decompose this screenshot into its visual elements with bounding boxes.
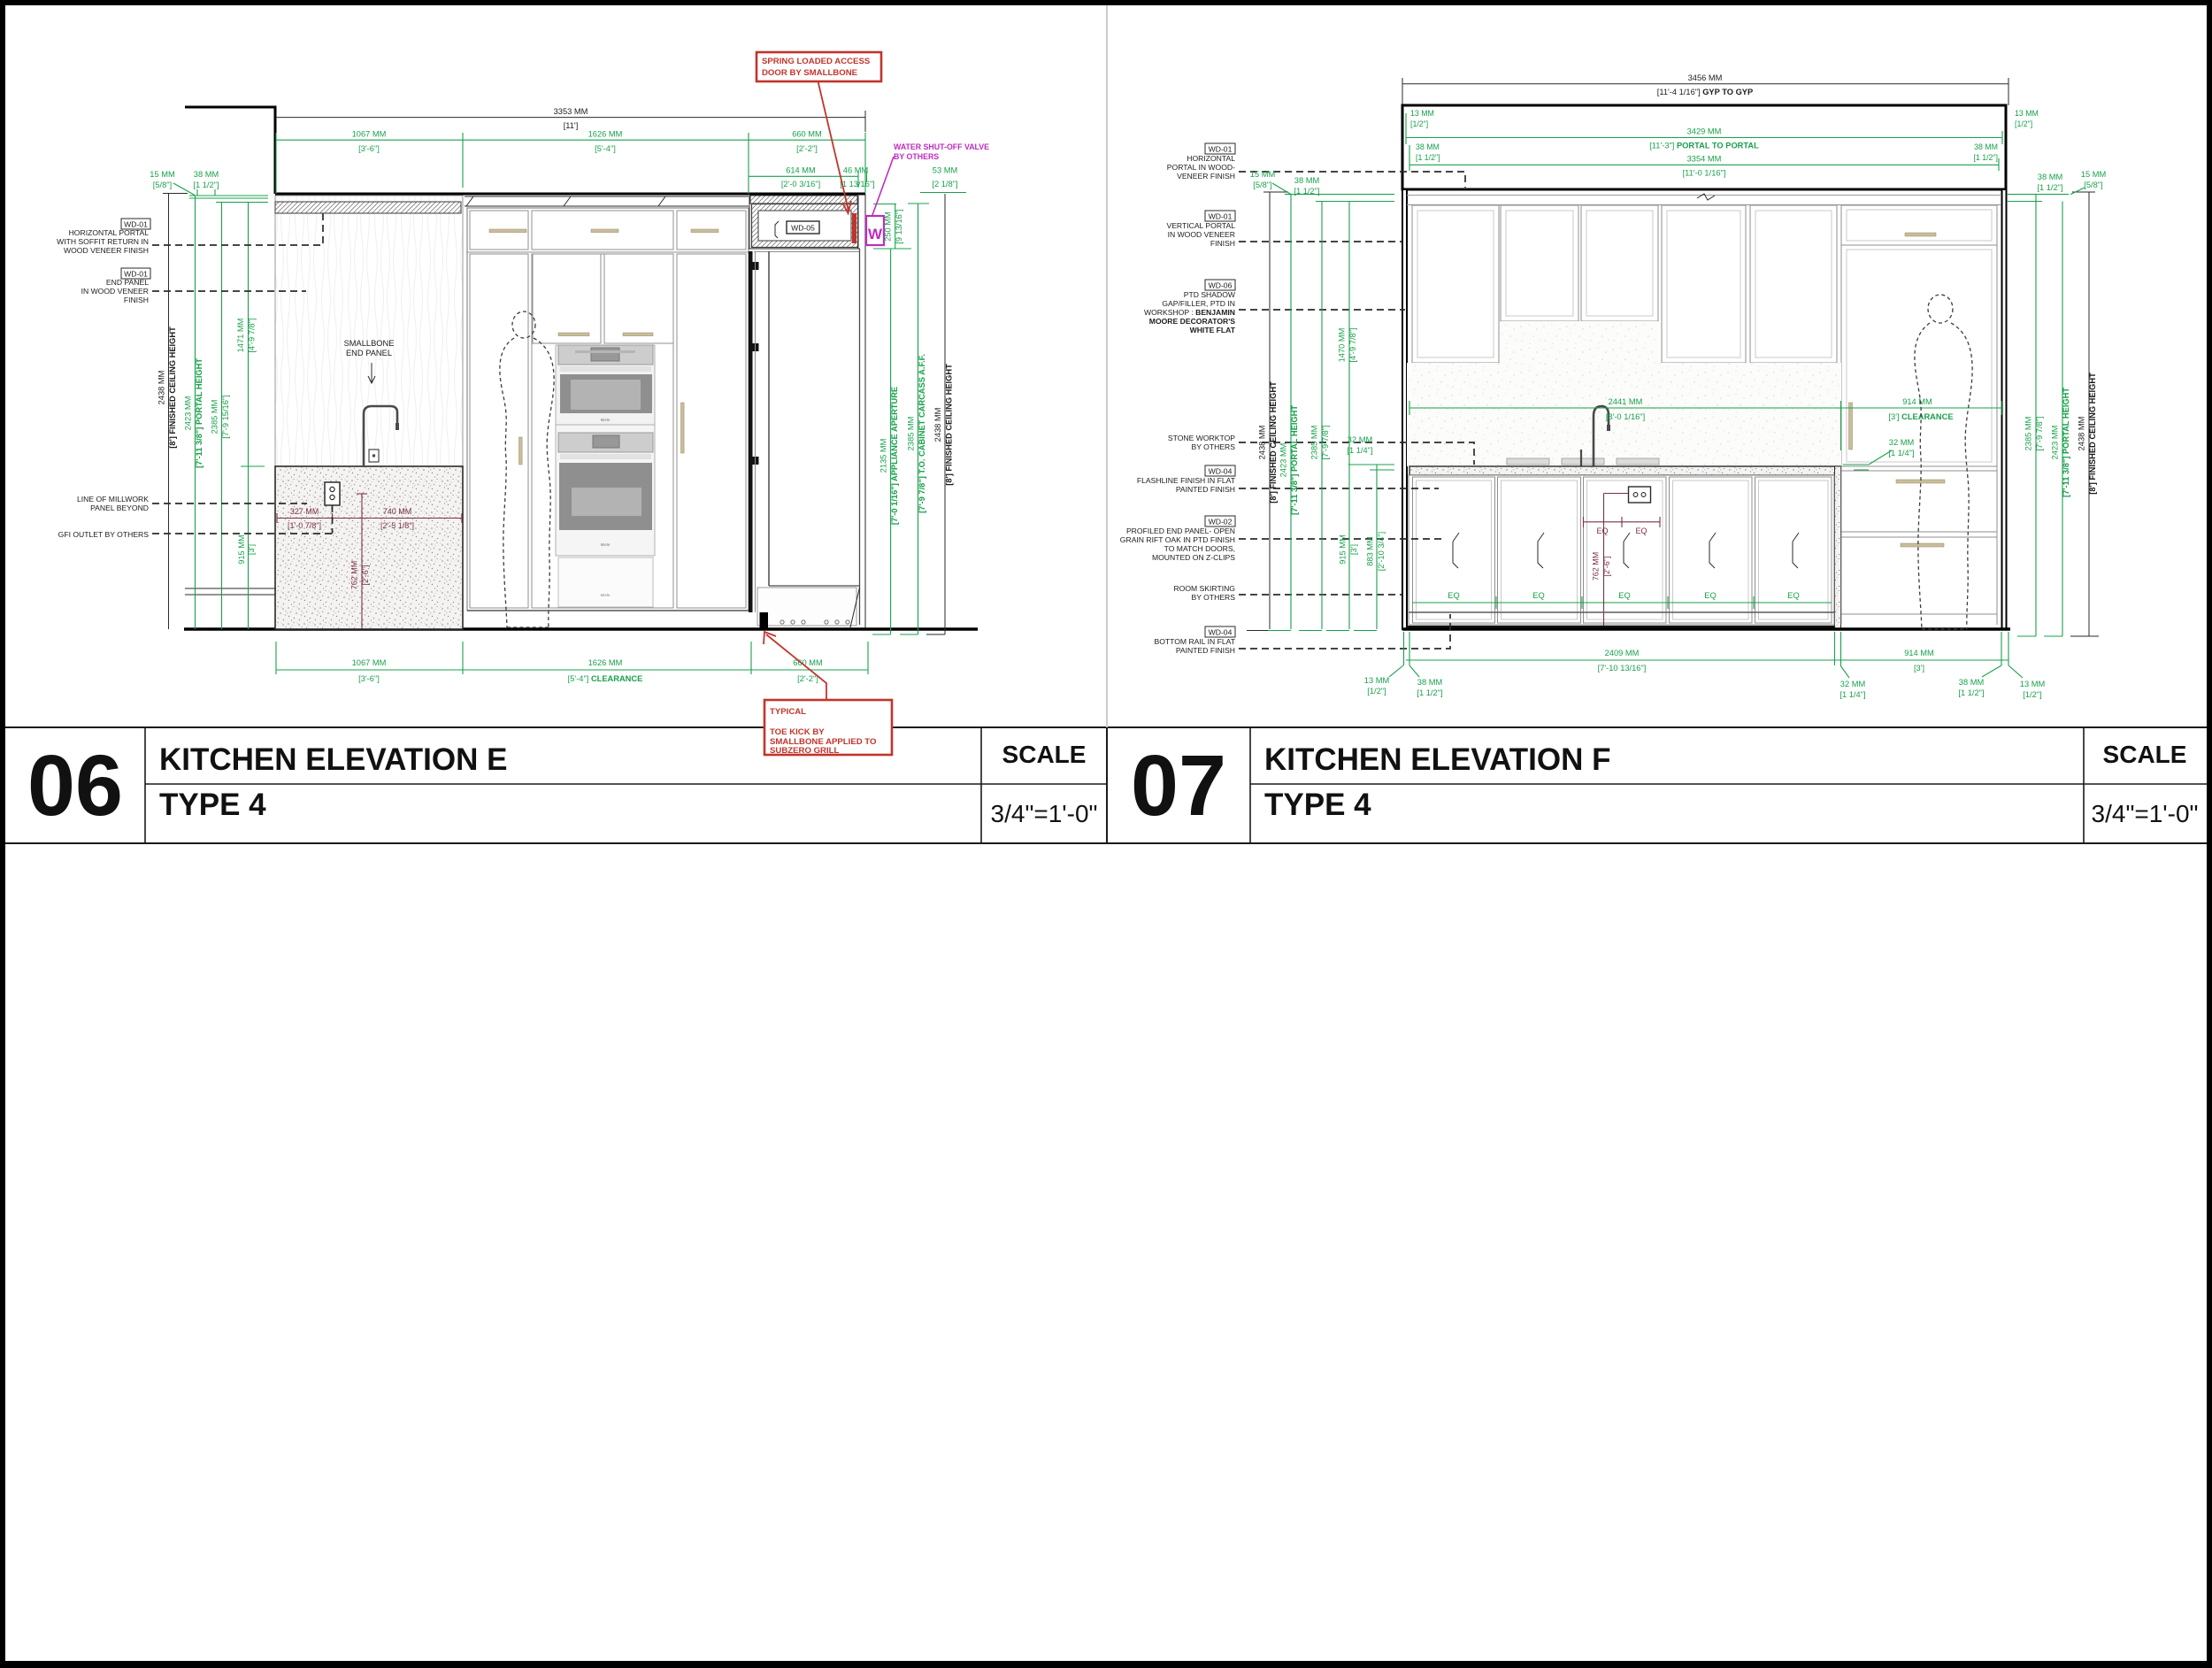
svg-text:EQ: EQ [1787,591,1799,600]
svg-text:LINE OF MILLWORK: LINE OF MILLWORK [77,495,149,503]
svg-text:2385 MM: 2385 MM [2024,417,2033,451]
svg-text:PAINTED FINISH: PAINTED FINISH [1176,485,1235,494]
svg-text:FLASHLINE FINISH IN FLAT: FLASHLINE FINISH IN FLAT [1137,476,1236,485]
svg-text:[11']: [11'] [564,121,579,130]
svg-text:[1 1/2"]: [1 1/2"] [1958,688,1984,697]
svg-text:EQ: EQ [1635,527,1647,535]
svg-text:Miele: Miele [601,542,611,547]
svg-text:15 MM: 15 MM [150,170,174,179]
svg-text:[7'-9 7/8"]: [7'-9 7/8"] [2035,416,2044,450]
svg-text:[7'-10 13/16"]: [7'-10 13/16"] [1598,664,1647,673]
svg-text:[7'-9 7/8"]: [7'-9 7/8"] [1321,425,1330,459]
svg-text:914 MM: 914 MM [1904,649,1934,657]
svg-text:[1/2"]: [1/2"] [2015,119,2032,128]
svg-text:PROFILED END PANEL- OPEN: PROFILED END PANEL- OPEN [1126,527,1235,535]
svg-text:[4'-9 7/8"]: [4'-9 7/8"] [248,318,257,352]
svg-text:[5/8"]: [5/8"] [2084,181,2102,189]
svg-text:1626 MM: 1626 MM [588,658,623,667]
svg-text:06: 06 [27,737,123,834]
svg-text:MOUNTED ON Z-CLIPS: MOUNTED ON Z-CLIPS [1152,553,1235,562]
svg-text:[1'-0 7/8"]: [1'-0 7/8"] [288,521,321,530]
svg-text:38 MM: 38 MM [1959,678,1984,687]
svg-text:[8'] FINISHED CEILING HEIGHT: [8'] FINISHED CEILING HEIGHT [1269,381,1278,503]
svg-text:915 MM: 915 MM [1339,534,1348,565]
svg-text:[5/8"]: [5/8"] [153,181,172,189]
svg-text:13 MM: 13 MM [1364,676,1389,685]
svg-text:TO MATCH DOORS,: TO MATCH DOORS, [1164,544,1235,553]
svg-text:WITH SOFFIT RETURN IN: WITH SOFFIT RETURN IN [57,237,149,246]
svg-text:[2'-0 3/16"]: [2'-0 3/16"] [781,180,820,188]
svg-text:SPRING LOADED ACCESS: SPRING LOADED ACCESS [762,57,871,66]
svg-text:2385 MM: 2385 MM [1310,426,1319,460]
svg-text:DOOR BY SMALLBONE: DOOR BY SMALLBONE [762,68,858,78]
svg-text:W: W [868,226,883,242]
svg-text:END PANEL: END PANEL [346,349,392,357]
svg-text:FINISH: FINISH [1210,239,1235,248]
svg-text:[2'-2"]: [2'-2"] [796,144,818,153]
svg-text:HORIZONTAL PORTAL: HORIZONTAL PORTAL [69,228,150,237]
svg-text:[1 1/4"]: [1 1/4"] [1347,446,1372,455]
svg-text:2385 MM: 2385 MM [211,400,219,434]
svg-text:740 MM: 740 MM [383,507,412,516]
svg-text:[3']: [3'] [1349,544,1358,555]
svg-text:PANEL BEYOND: PANEL BEYOND [90,503,149,512]
svg-text:38 MM: 38 MM [1416,142,1440,151]
svg-text:KITCHEN ELEVATION E: KITCHEN ELEVATION E [159,742,507,777]
svg-text:GRAIN RIFT OAK IN PTD FINISH: GRAIN RIFT OAK IN PTD FINISH [1120,535,1235,544]
svg-text:15 MM: 15 MM [1250,170,1275,179]
svg-text:07: 07 [1131,737,1226,834]
svg-text:15 MM: 15 MM [2081,170,2106,179]
svg-text:WD-01: WD-01 [124,270,148,279]
svg-text:2423 MM: 2423 MM [1279,443,1288,478]
svg-text:38 MM: 38 MM [2038,173,2062,181]
svg-text:762 MM: 762 MM [350,561,359,590]
svg-text:[2'-6"]: [2'-6"] [361,565,370,586]
svg-text:WATER SHUT-OFF VALVE: WATER SHUT-OFF VALVE [894,142,989,151]
svg-text:614 MM: 614 MM [786,166,816,175]
svg-text:1067 MM: 1067 MM [352,658,387,667]
svg-text:[1 1/4"]: [1 1/4"] [1888,449,1914,457]
svg-text:EQ: EQ [1596,527,1608,535]
svg-text:3/4"=1'-0": 3/4"=1'-0" [991,800,1098,827]
svg-text:BY OTHERS: BY OTHERS [1191,442,1235,451]
svg-text:13 MM: 13 MM [2020,680,2045,688]
svg-text:IN WOOD VENEER: IN WOOD VENEER [81,287,149,296]
svg-text:[3']: [3'] [247,544,256,555]
svg-text:[5'-4"] CLEARANCE: [5'-4"] CLEARANCE [568,674,643,683]
svg-text:WD-01: WD-01 [1209,145,1233,154]
svg-text:[8'] FINISHED CEILING HEIGHT: [8'] FINISHED CEILING HEIGHT [2088,373,2097,495]
svg-text:EQ: EQ [1448,591,1459,600]
svg-text:PAINTED FINISH: PAINTED FINISH [1176,646,1235,655]
svg-text:2438 MM: 2438 MM [1258,426,1267,460]
svg-text:GFI OUTLET BY OTHERS: GFI OUTLET BY OTHERS [58,530,150,539]
svg-text:WD-06: WD-06 [1209,281,1233,290]
svg-text:EQ: EQ [1532,591,1544,600]
svg-text:EQ: EQ [1618,591,1630,600]
svg-text:WHITE FLAT: WHITE FLAT [1190,326,1236,334]
svg-text:[1/2"]: [1/2"] [1410,119,1428,128]
svg-text:[1 1/2"]: [1 1/2"] [1294,187,1319,196]
svg-text:BOTTOM RAIL IN FLAT: BOTTOM RAIL IN FLAT [1154,637,1235,646]
svg-text:TOE KICK BY: TOE KICK BY [770,727,825,737]
svg-text:ROOM SKIRTING: ROOM SKIRTING [1173,584,1235,593]
svg-text:WD-04: WD-04 [1209,467,1233,476]
svg-text:762 MM: 762 MM [1592,552,1601,581]
svg-text:32 MM: 32 MM [1840,680,1865,688]
svg-text:WOOD VENEER FINISH: WOOD VENEER FINISH [64,246,149,255]
svg-text:[2'-6"]: [2'-6"] [1602,557,1611,577]
svg-text:[9 13/16"]: [9 13/16"] [895,209,903,244]
svg-text:660 MM: 660 MM [792,130,822,139]
svg-text:[2'-2"]: [2'-2"] [797,674,818,683]
svg-text:[1 1/2"]: [1 1/2"] [193,181,219,189]
svg-text:[7'-0 1/16"] APPLIANCE APERTUR: [7'-0 1/16"] APPLIANCE APERTURE [890,387,899,525]
svg-text:3429 MM: 3429 MM [1687,127,1722,136]
svg-text:[2'-10 3/4"]: [2'-10 3/4"] [1377,532,1386,571]
svg-text:46 MM: 46 MM [843,166,868,175]
svg-text:13 MM: 13 MM [1410,109,1434,118]
svg-text:2441 MM: 2441 MM [1609,397,1643,406]
svg-text:[7'-11 3/8"] PORTAL HEIGHT: [7'-11 3/8"] PORTAL HEIGHT [2062,388,2070,497]
svg-text:PORTAL IN WOOD-: PORTAL IN WOOD- [1167,163,1235,172]
svg-text:1470 MM: 1470 MM [1338,328,1347,363]
svg-text:[2'-5 1/8"]: [2'-5 1/8"] [380,521,414,530]
svg-text:VENEER FINISH: VENEER FINISH [1177,172,1235,181]
svg-text:38 MM: 38 MM [1294,176,1319,185]
svg-text:[1 1/2"]: [1 1/2"] [1416,153,1440,162]
svg-text:[3'-6"]: [3'-6"] [358,144,380,153]
svg-text:[3'-6"]: [3'-6"] [358,674,380,683]
svg-text:32 MM: 32 MM [1889,438,1914,447]
svg-text:38 MM: 38 MM [194,170,219,179]
svg-text:BY OTHERS: BY OTHERS [1191,593,1235,602]
svg-text:BY OTHERS: BY OTHERS [894,152,939,161]
svg-text:PTD SHADOW: PTD SHADOW [1184,290,1236,299]
svg-text:13 MM: 13 MM [2015,109,2039,118]
svg-text:KITCHEN ELEVATION F: KITCHEN ELEVATION F [1264,742,1610,777]
svg-text:3456 MM: 3456 MM [1688,73,1723,82]
svg-text:[1 1/2"]: [1 1/2"] [2037,183,2062,192]
svg-text:[1 1/2"]: [1 1/2"] [1417,688,1442,697]
svg-text:[1/2"]: [1/2"] [2023,690,2041,699]
svg-text:TYPE 4: TYPE 4 [159,788,266,822]
svg-text:Miele: Miele [601,418,611,422]
svg-text:2438 MM: 2438 MM [933,408,942,442]
svg-text:WD-01: WD-01 [124,220,148,229]
svg-text:[11'-4 1/16"] GYP TO GYP: [11'-4 1/16"] GYP TO GYP [1657,88,1753,96]
svg-text:SCALE: SCALE [2103,741,2187,768]
svg-text:WD-05: WD-05 [791,224,815,233]
svg-text:2423 MM: 2423 MM [2051,426,2060,460]
svg-text:914 MM: 914 MM [1902,397,1932,406]
svg-text:38 MM: 38 MM [1974,142,1998,151]
svg-text:3/4"=1'-0": 3/4"=1'-0" [2092,800,2199,827]
svg-text:2135 MM: 2135 MM [879,439,888,473]
svg-text:2409 MM: 2409 MM [1605,649,1640,657]
svg-text:2438 MM: 2438 MM [157,371,166,405]
svg-text:38 MM: 38 MM [1417,678,1442,687]
svg-text:TYPE 4: TYPE 4 [1264,788,1371,822]
svg-text:[7'-9 7/8"] T.O. CABINET CARCA: [7'-9 7/8"] T.O. CABINET CARCASS A.F.F. [918,354,926,513]
svg-text:32 MM: 32 MM [1348,435,1372,444]
svg-text:WD-01: WD-01 [1209,212,1233,221]
svg-text:3353 MM: 3353 MM [554,107,588,116]
svg-text:1067 MM: 1067 MM [352,130,387,139]
svg-text:Miele: Miele [601,593,611,597]
svg-text:2385 MM: 2385 MM [907,417,916,451]
svg-text:VERTICAL PORTAL: VERTICAL PORTAL [1166,221,1235,230]
svg-text:[11'-3"] PORTAL TO PORTAL: [11'-3"] PORTAL TO PORTAL [1649,142,1759,150]
svg-text:TYPICAL: TYPICAL [770,707,806,717]
svg-text:[7'-11 3/8"] PORTAL HEIGHT: [7'-11 3/8"] PORTAL HEIGHT [195,358,204,468]
svg-text:SMALLBONE: SMALLBONE [344,339,395,348]
svg-text:3354 MM: 3354 MM [1687,155,1722,164]
svg-text:WD-02: WD-02 [1209,518,1233,527]
svg-text:2423 MM: 2423 MM [184,396,193,431]
svg-text:STONE WORKTOP: STONE WORKTOP [1168,434,1235,442]
svg-text:[7'-11 3/8"] PORTAL HEIGHT: [7'-11 3/8"] PORTAL HEIGHT [1290,405,1299,515]
svg-text:[8'] FINISHED CEILING HEIGHT: [8'] FINISHED CEILING HEIGHT [945,364,954,486]
svg-text:883 MM: 883 MM [1366,536,1375,566]
svg-text:53 MM: 53 MM [933,166,957,175]
svg-text:1471 MM: 1471 MM [236,319,245,353]
svg-text:FINISH: FINISH [124,296,149,304]
svg-text:[8'] FINISHED CEILING HEIGHT: [8'] FINISHED CEILING HEIGHT [168,327,177,449]
svg-text:[1 1/2"]: [1 1/2"] [1973,153,1998,162]
svg-text:[1 1/4"]: [1 1/4"] [1839,690,1865,699]
svg-text:WORKSHOP : BENJAMIN: WORKSHOP : BENJAMIN [1144,308,1235,317]
svg-text:[8'-0 1/16"]: [8'-0 1/16"] [1606,412,1645,421]
svg-text:WD-04: WD-04 [1209,628,1233,637]
svg-text:[2 1/8"]: [2 1/8"] [932,180,957,188]
svg-text:END PANEL: END PANEL [106,278,149,287]
svg-text:915 MM: 915 MM [237,534,246,565]
svg-text:[1 13/16"]: [1 13/16"] [840,180,875,188]
svg-text:[3']: [3'] [1914,664,1924,673]
svg-text:SUBZERO GRILL: SUBZERO GRILL [770,746,839,756]
svg-text:[4'-9 7/8"]: [4'-9 7/8"] [1348,327,1357,362]
svg-text:MOORE DECORATOR'S: MOORE DECORATOR'S [1149,317,1235,326]
svg-text:IN WOOD VENEER: IN WOOD VENEER [1168,230,1235,239]
svg-text:[1/2"]: [1/2"] [1367,687,1386,696]
svg-text:[5'-4"]: [5'-4"] [595,144,616,153]
svg-text:[5/8"]: [5/8"] [1253,181,1271,189]
svg-text:[7'-9 15/16"]: [7'-9 15/16"] [221,395,230,439]
svg-text:2438 MM: 2438 MM [2078,417,2086,451]
svg-text:327 MM: 327 MM [290,507,319,516]
svg-text:EQ: EQ [1704,591,1716,600]
svg-text:HORIZONTAL: HORIZONTAL [1187,154,1235,163]
svg-text:1626 MM: 1626 MM [588,130,623,139]
svg-text:[11'-0 1/16"]: [11'-0 1/16"] [1683,169,1726,178]
svg-text:GAP/FILLER, PTD IN: GAP/FILLER, PTD IN [1162,299,1235,308]
svg-text:SCALE: SCALE [1002,741,1087,768]
